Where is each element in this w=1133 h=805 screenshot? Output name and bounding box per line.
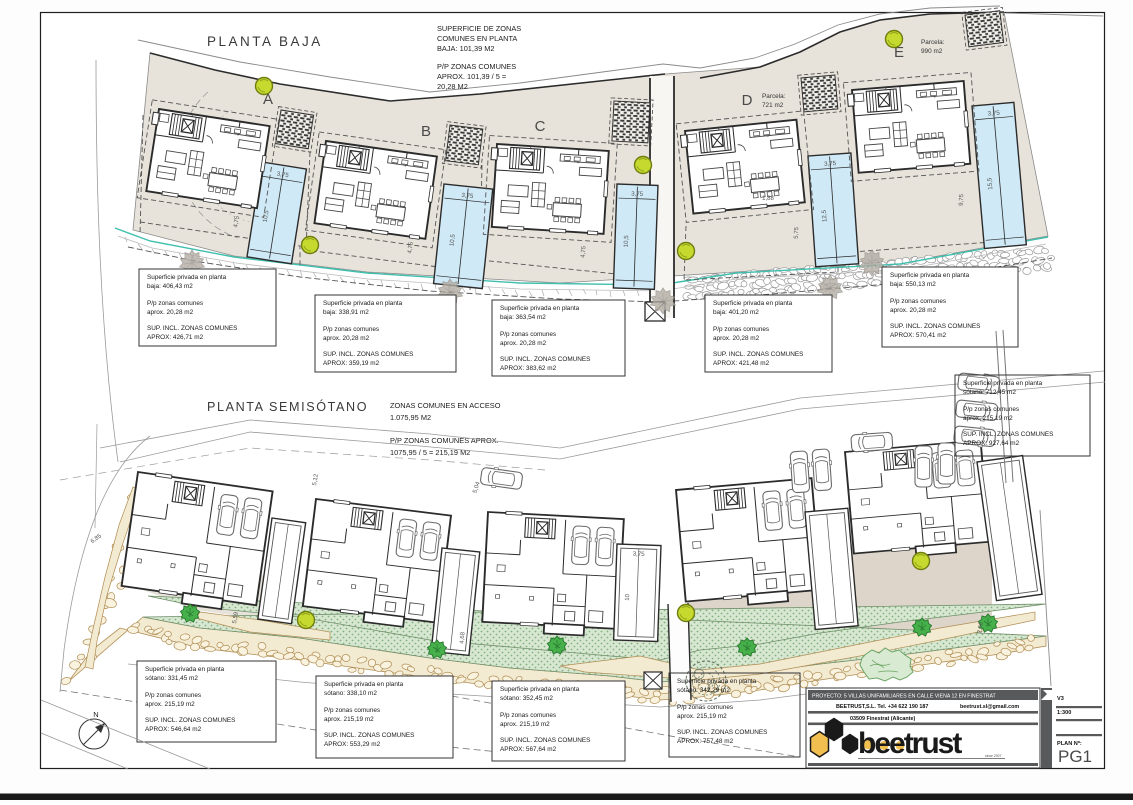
- svg-text:Superficie privada en planta: Superficie privada en planta: [963, 380, 1043, 387]
- svg-text:sótano: 338,10 m2: sótano: 338,10 m2: [324, 690, 377, 697]
- svg-text:aprox. 215,19 m2: aprox. 215,19 m2: [677, 713, 727, 720]
- svg-text:Superficie privada en planta: Superficie privada en planta: [677, 678, 757, 685]
- svg-text:3,75: 3,75: [824, 160, 837, 168]
- svg-text:baja: 338,91 m2: baja: 338,91 m2: [323, 309, 369, 316]
- svg-text:P/p zonas comunes: P/p zonas comunes: [145, 692, 201, 699]
- svg-text:10,5: 10,5: [623, 235, 630, 248]
- svg-text:Superficie privada en planta: Superficie privada en planta: [147, 274, 227, 281]
- svg-text:aprox. 20,28 m2: aprox. 20,28 m2: [890, 307, 937, 314]
- svg-text:3,75: 3,75: [631, 191, 644, 198]
- svg-text:Parcela:: Parcela:: [921, 39, 945, 46]
- svg-text:SUP. INCL. ZONAS COMUNES: SUP. INCL. ZONAS COMUNES: [323, 351, 413, 358]
- svg-text:APROX. 101,39 / 5 =: APROX. 101,39 / 5 =: [437, 72, 506, 81]
- svg-text:APROX: 567,64 m2: APROX: 567,64 m2: [500, 746, 557, 753]
- svg-text:SUP. INCL. ZONAS COMUNES: SUP. INCL. ZONAS COMUNES: [890, 323, 980, 330]
- svg-text:Superficie privada en planta: Superficie privada en planta: [890, 272, 970, 279]
- svg-text:aprox. 20,28 m2: aprox. 20,28 m2: [713, 335, 760, 342]
- svg-text:baja: 550,13 m2: baja: 550,13 m2: [890, 281, 936, 288]
- svg-text:P/p zonas comunes: P/p zonas comunes: [963, 406, 1019, 413]
- svg-text:Superficie privada en planta: Superficie privada en planta: [324, 681, 404, 688]
- svg-text:sótano: 712,45 m2: sótano: 712,45 m2: [963, 389, 1016, 396]
- svg-text:P/p zonas comunes: P/p zonas comunes: [890, 298, 946, 305]
- svg-text:beetrust.sl@gmail.com: beetrust.sl@gmail.com: [960, 704, 1019, 710]
- svg-text:aprox. 215,19 m2: aprox. 215,19 m2: [500, 721, 550, 728]
- svg-text:PLANTA BAJA: PLANTA BAJA: [207, 34, 323, 49]
- svg-text:P/p zonas comunes: P/p zonas comunes: [147, 300, 203, 307]
- svg-text:baja: 363,54 m2: baja: 363,54 m2: [500, 314, 546, 321]
- svg-text:APROX: 546,64 m2: APROX: 546,64 m2: [145, 726, 202, 733]
- svg-text:P/p zonas comunes: P/p zonas comunes: [677, 704, 733, 711]
- svg-text:Superficie privada en planta: Superficie privada en planta: [500, 305, 580, 312]
- svg-text:1:300: 1:300: [1057, 710, 1071, 716]
- svg-text:PROYECTO: 5 VILLAS UNIFAMILIA: PROYECTO: 5 VILLAS UNIFAMILIARES EN CALL…: [812, 694, 997, 700]
- svg-text:aprox. 215,19 m2: aprox. 215,19 m2: [963, 415, 1013, 422]
- svg-text:SUPERFICIE DE ZONAS: SUPERFICIE DE ZONAS: [437, 24, 521, 33]
- svg-text:1.075,95 M2: 1.075,95 M2: [390, 413, 431, 422]
- svg-text:990 m2: 990 m2: [921, 48, 943, 55]
- svg-text:SUP. INCL. ZONAS COMUNES: SUP. INCL. ZONAS COMUNES: [677, 729, 767, 736]
- svg-text:PG1: PG1: [1058, 747, 1092, 766]
- svg-text:9,75: 9,75: [959, 193, 965, 206]
- svg-text:20,28 M2: 20,28 M2: [437, 82, 468, 91]
- svg-text:SUP. INCL. ZONAS COMUNES: SUP. INCL. ZONAS COMUNES: [500, 356, 590, 363]
- svg-text:aprox. 20,28 m2: aprox. 20,28 m2: [147, 309, 194, 316]
- svg-text:SUP. INCL. ZONAS COMUNES: SUP. INCL. ZONAS COMUNES: [147, 325, 237, 332]
- svg-text:P/P ZONAS COMUNES: P/P ZONAS COMUNES: [437, 62, 516, 71]
- svg-text:SUP. INCL. ZONAS COMUNES: SUP. INCL. ZONAS COMUNES: [324, 732, 414, 739]
- svg-text:BAJA: 101,39 M2: BAJA: 101,39 M2: [437, 44, 495, 53]
- svg-text:APROX: 421,48 m2: APROX: 421,48 m2: [713, 360, 770, 367]
- svg-text:aprox. 20,28 m2: aprox. 20,28 m2: [323, 335, 370, 342]
- svg-text:SUP. INCL. ZONAS COMUNES: SUP. INCL. ZONAS COMUNES: [145, 717, 235, 724]
- svg-text:Parcela:: Parcela:: [762, 93, 786, 100]
- svg-text:BEETRUST,S.L. Tel. +34 622: BEETRUST,S.L. Tel. +34 622 190 187: [836, 704, 928, 710]
- svg-text:V3: V3: [1057, 696, 1064, 702]
- svg-text:1,88: 1,88: [762, 196, 774, 202]
- svg-text:P/p zonas comunes: P/p zonas comunes: [324, 707, 380, 714]
- svg-text:3,75: 3,75: [633, 551, 646, 558]
- svg-text:APROX: 359,19 m2: APROX: 359,19 m2: [323, 360, 380, 367]
- svg-text:since 2007: since 2007: [985, 754, 1002, 758]
- svg-text:SUP. INCL. ZONAS COMUNES: SUP. INCL. ZONAS COMUNES: [713, 351, 803, 358]
- svg-text:aprox. 20,28 m2: aprox. 20,28 m2: [500, 340, 547, 347]
- svg-text:B: B: [421, 123, 431, 140]
- svg-text:4,68: 4,68: [460, 631, 467, 644]
- svg-text:10: 10: [624, 593, 631, 601]
- svg-text:P/p zonas comunes: P/p zonas comunes: [713, 326, 769, 333]
- svg-text:APROX: 570,41 m2: APROX: 570,41 m2: [890, 332, 947, 339]
- svg-text:SUP. INCL. ZONAS COMUNES: SUP. INCL. ZONAS COMUNES: [963, 431, 1053, 438]
- svg-text:sótano: 331,45 m2: sótano: 331,45 m2: [145, 675, 198, 682]
- svg-text:10,5: 10,5: [449, 233, 457, 246]
- svg-text:aprox. 215,19 m2: aprox. 215,19 m2: [324, 716, 374, 723]
- svg-text:PLANTA SEMISÓTANO: PLANTA SEMISÓTANO: [207, 399, 368, 414]
- svg-text:APROX: 426,71 m2: APROX: 426,71 m2: [147, 334, 204, 341]
- svg-text:aprox. 215,19 m2: aprox. 215,19 m2: [145, 701, 195, 708]
- svg-text:Superficie privada en planta: Superficie privada en planta: [713, 300, 793, 307]
- svg-text:Superficie privada en planta: Superficie privada en planta: [323, 300, 403, 307]
- svg-text:P/p zonas comunes: P/p zonas comunes: [500, 331, 556, 338]
- svg-text:beetrust: beetrust: [858, 727, 962, 760]
- svg-text:C: C: [535, 118, 546, 135]
- svg-text:P/P ZONAS COMUNES APROX.: P/P ZONAS COMUNES APROX.: [390, 436, 499, 445]
- svg-text:03509 Finestrat (Alicante): 03509 Finestrat (Alicante): [850, 716, 916, 722]
- svg-text:sótano: 342,29 m2: sótano: 342,29 m2: [677, 687, 730, 694]
- svg-text:4,75: 4,75: [581, 245, 588, 258]
- svg-text:APROX: 757,48 m2: APROX: 757,48 m2: [677, 738, 734, 745]
- svg-text:15,5: 15,5: [986, 177, 994, 190]
- svg-text:12,5: 12,5: [821, 209, 829, 222]
- svg-text:SUP. INCL. ZONAS COMUNES: SUP. INCL. ZONAS COMUNES: [500, 737, 590, 744]
- svg-text:3,75: 3,75: [987, 110, 1000, 118]
- svg-text:Superficie privada en planta: Superficie privada en planta: [500, 686, 580, 693]
- svg-text:baja: 401,20 m2: baja: 401,20 m2: [713, 309, 759, 316]
- svg-text:Superficie privada en planta: Superficie privada en planta: [145, 666, 225, 673]
- svg-text:ZONAS COMUNES EN ACCESO: ZONAS COMUNES EN ACCESO: [390, 401, 501, 410]
- svg-text:5,75: 5,75: [794, 226, 801, 239]
- svg-text:721 m2: 721 m2: [762, 102, 784, 109]
- svg-text:APROX: 383,62 m2: APROX: 383,62 m2: [500, 365, 557, 372]
- svg-text:COMUNES EN PLANTA: COMUNES EN PLANTA: [437, 34, 517, 43]
- svg-text:APROX: 927,64 m2: APROX: 927,64 m2: [963, 440, 1020, 447]
- svg-text:baja: 406,43 m2: baja: 406,43 m2: [147, 283, 193, 290]
- svg-text:3,75: 3,75: [461, 192, 474, 200]
- svg-text:sótano: 352,45 m2: sótano: 352,45 m2: [500, 695, 553, 702]
- svg-text:D: D: [742, 92, 753, 109]
- svg-text:APROX: 553,29 m2: APROX: 553,29 m2: [324, 741, 381, 748]
- svg-text:P/p zonas comunes: P/p zonas comunes: [500, 712, 556, 719]
- svg-text:P/p zonas comunes: P/p zonas comunes: [323, 326, 379, 333]
- svg-text:N: N: [93, 710, 98, 719]
